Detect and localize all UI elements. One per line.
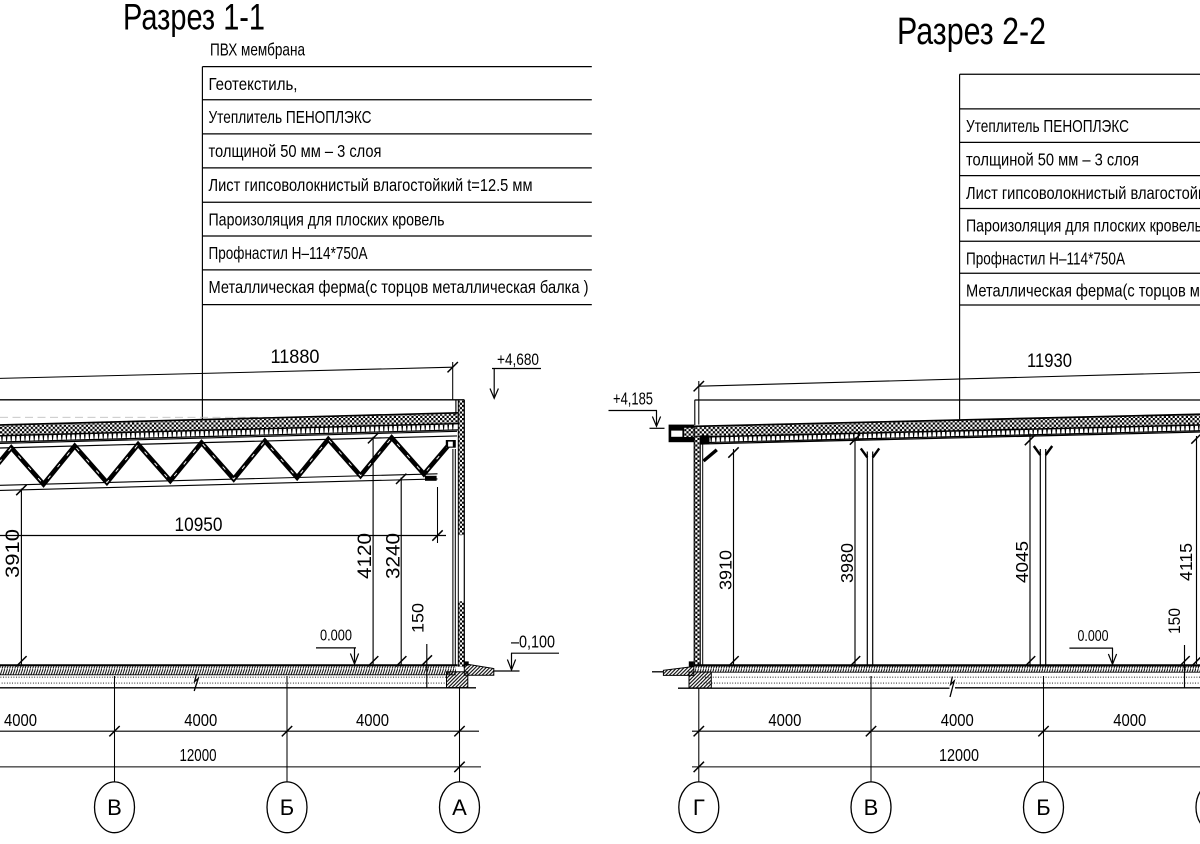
svg-text:0.000: 0.000 xyxy=(1078,628,1109,645)
svg-text:4000: 4000 xyxy=(1113,710,1146,730)
svg-text:Разрез 1-1: Разрез 1-1 xyxy=(123,0,265,38)
svg-text:3910: 3910 xyxy=(3,529,24,578)
svg-text:150: 150 xyxy=(408,603,427,633)
svg-text:Пароизоляция для плоских крове: Пароизоляция для плоских кровель xyxy=(966,216,1200,236)
svg-text:Разрез 2-2: Разрез 2-2 xyxy=(897,11,1046,53)
svg-text:0.000: 0.000 xyxy=(320,628,352,645)
svg-text:Профнастил Н–114*750А: Профнастил Н–114*750А xyxy=(209,243,368,263)
svg-text:Утеплитель ПЕНОПЛЭКС: Утеплитель ПЕНОПЛЭКС xyxy=(966,116,1129,136)
svg-text:В: В xyxy=(864,795,879,820)
svg-text:150: 150 xyxy=(1165,608,1184,634)
svg-text:Пароизоляция для плоских крове: Пароизоляция для плоских кровель xyxy=(209,210,445,230)
svg-text:4000: 4000 xyxy=(941,710,974,730)
svg-text:ПВХ мембрана: ПВХ мембрана xyxy=(210,40,305,60)
svg-text:10950: 10950 xyxy=(175,515,223,536)
svg-text:толщиной 50 мм – 3 слоя: толщиной 50 мм – 3 слоя xyxy=(966,150,1139,170)
svg-text:толщиной 50 мм – 3 слоя: толщиной 50 мм – 3 слоя xyxy=(209,141,382,161)
svg-text:Б: Б xyxy=(1036,795,1050,820)
svg-text:4000: 4000 xyxy=(184,710,217,730)
svg-text:Г: Г xyxy=(693,795,705,820)
svg-text:11930: 11930 xyxy=(1027,351,1072,372)
svg-text:А: А xyxy=(452,795,467,820)
svg-text:Металлическая ферма(с торцов м: Металлическая ферма(с торцов металлическ… xyxy=(209,277,589,297)
svg-text:Металлическая ферма(с торцов м: Металлическая ферма(с торцов металлическ… xyxy=(966,281,1200,301)
svg-text:4045: 4045 xyxy=(1012,541,1032,583)
svg-text:4000: 4000 xyxy=(768,710,801,730)
svg-text:12000: 12000 xyxy=(180,745,217,765)
svg-text:4000: 4000 xyxy=(356,710,389,730)
svg-text:4120: 4120 xyxy=(355,533,376,579)
svg-text:3980: 3980 xyxy=(837,543,857,583)
svg-text:3910: 3910 xyxy=(715,550,735,590)
svg-text:11880: 11880 xyxy=(271,347,320,368)
svg-text:3240: 3240 xyxy=(384,533,405,579)
svg-text:12000: 12000 xyxy=(939,745,979,765)
svg-text:Лист гипсоволокнистый влагосто: Лист гипсоволокнистый влагостойкий t=12.… xyxy=(966,183,1200,203)
svg-text:В: В xyxy=(107,795,122,820)
svg-text:+4,680: +4,680 xyxy=(497,351,539,369)
svg-text:Б: Б xyxy=(280,795,294,820)
svg-text:–0,100: –0,100 xyxy=(511,632,555,652)
svg-text:Профнастил Н–114*750А: Профнастил Н–114*750А xyxy=(966,249,1125,269)
svg-text:Геотекстиль,: Геотекстиль, xyxy=(209,74,298,94)
svg-text:4000: 4000 xyxy=(4,710,37,730)
svg-text:+4,185: +4,185 xyxy=(613,389,653,409)
svg-text:Лист гипсоволокнистый влагосто: Лист гипсоволокнистый влагостойкий t=12.… xyxy=(209,175,533,195)
svg-text:Утеплитель ПЕНОПЛЭКС: Утеплитель ПЕНОПЛЭКС xyxy=(209,107,372,127)
svg-text:4115: 4115 xyxy=(1176,543,1196,581)
